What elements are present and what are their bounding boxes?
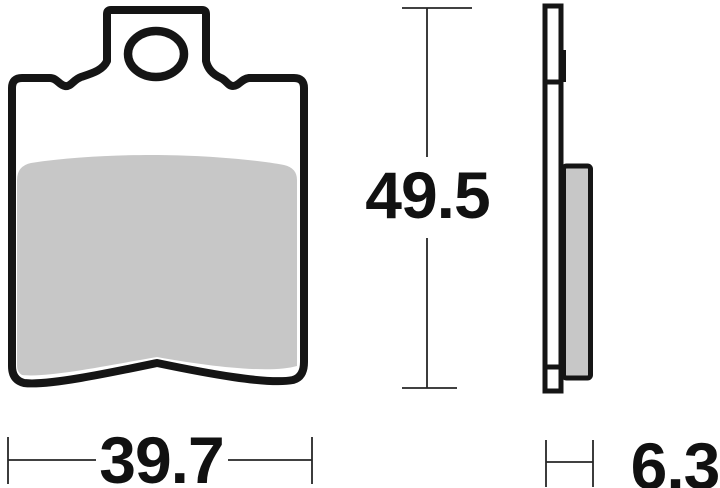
backplate-side-main bbox=[545, 82, 561, 367]
mounting-hole bbox=[128, 31, 184, 77]
brake-pad-technical-drawing: 39.7 49.5 6.3 bbox=[0, 0, 720, 488]
friction-material-front bbox=[17, 155, 297, 375]
drawing-figure bbox=[0, 0, 720, 488]
friction-material-side bbox=[564, 166, 591, 378]
width-dimension-label: 39.7 bbox=[96, 427, 227, 488]
front-view bbox=[12, 10, 304, 383]
backplate-side-tab bbox=[545, 6, 561, 82]
backplate-side-foot bbox=[545, 367, 561, 391]
thickness-dimension-label: 6.3 bbox=[627, 433, 720, 488]
side-view bbox=[545, 6, 591, 391]
height-dimension-label: 49.5 bbox=[360, 162, 495, 228]
thickness-dimension bbox=[546, 440, 593, 487]
backplate-side-step bbox=[561, 50, 566, 82]
